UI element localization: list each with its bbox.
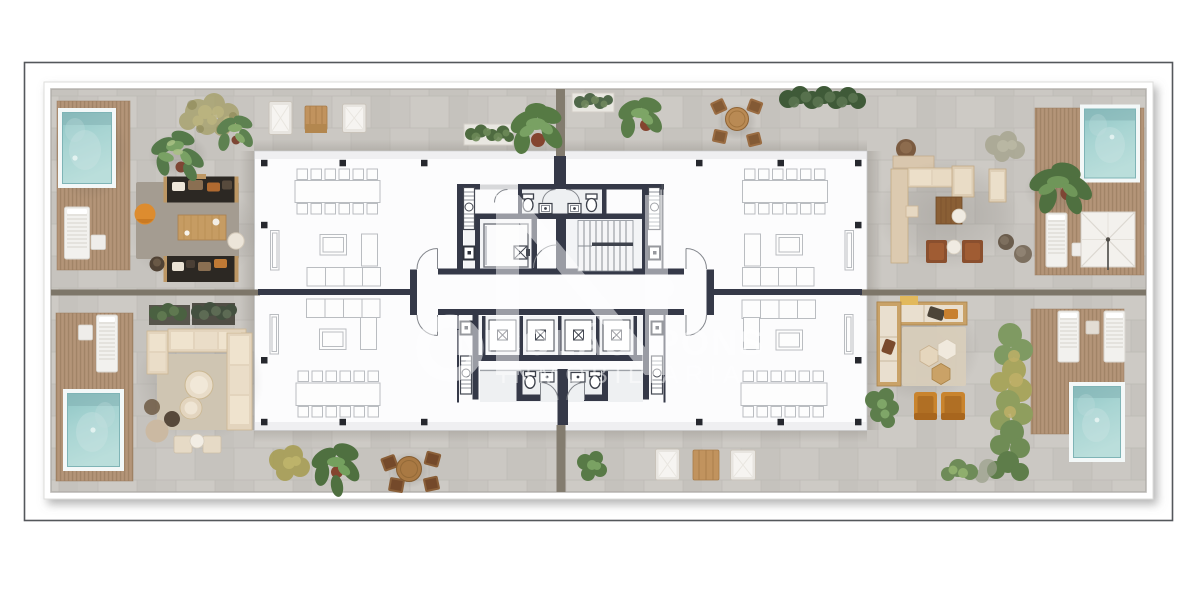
svg-text:INMOBILIARIA: INMOBILIARIA (500, 361, 746, 389)
svg-text:NICOLÁS PONS: NICOLÁS PONS (455, 322, 765, 363)
